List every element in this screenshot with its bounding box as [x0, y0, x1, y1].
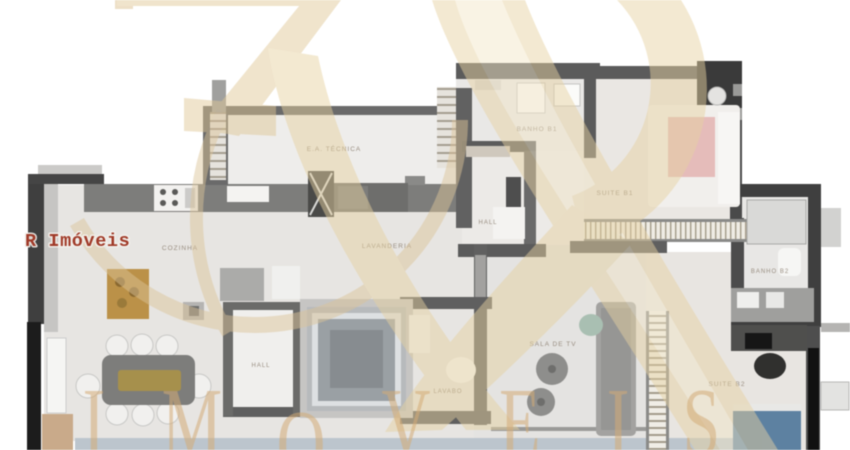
svg-text:S: S — [683, 369, 721, 450]
svg-text:BANHO B2: BANHO B2 — [751, 269, 789, 275]
svg-text:O: O — [277, 391, 326, 450]
svg-text:R Imóveis: R Imóveis — [25, 231, 130, 252]
svg-text:HALL: HALL — [478, 220, 497, 226]
svg-text:V: V — [382, 369, 431, 450]
svg-text:I: I — [607, 369, 630, 450]
svg-text:M: M — [162, 369, 222, 450]
svg-text:SALA DE TV: SALA DE TV — [529, 341, 576, 348]
svg-text:I: I — [83, 369, 106, 450]
svg-text:E: E — [499, 369, 540, 450]
svg-text:HALL: HALL — [251, 363, 270, 369]
